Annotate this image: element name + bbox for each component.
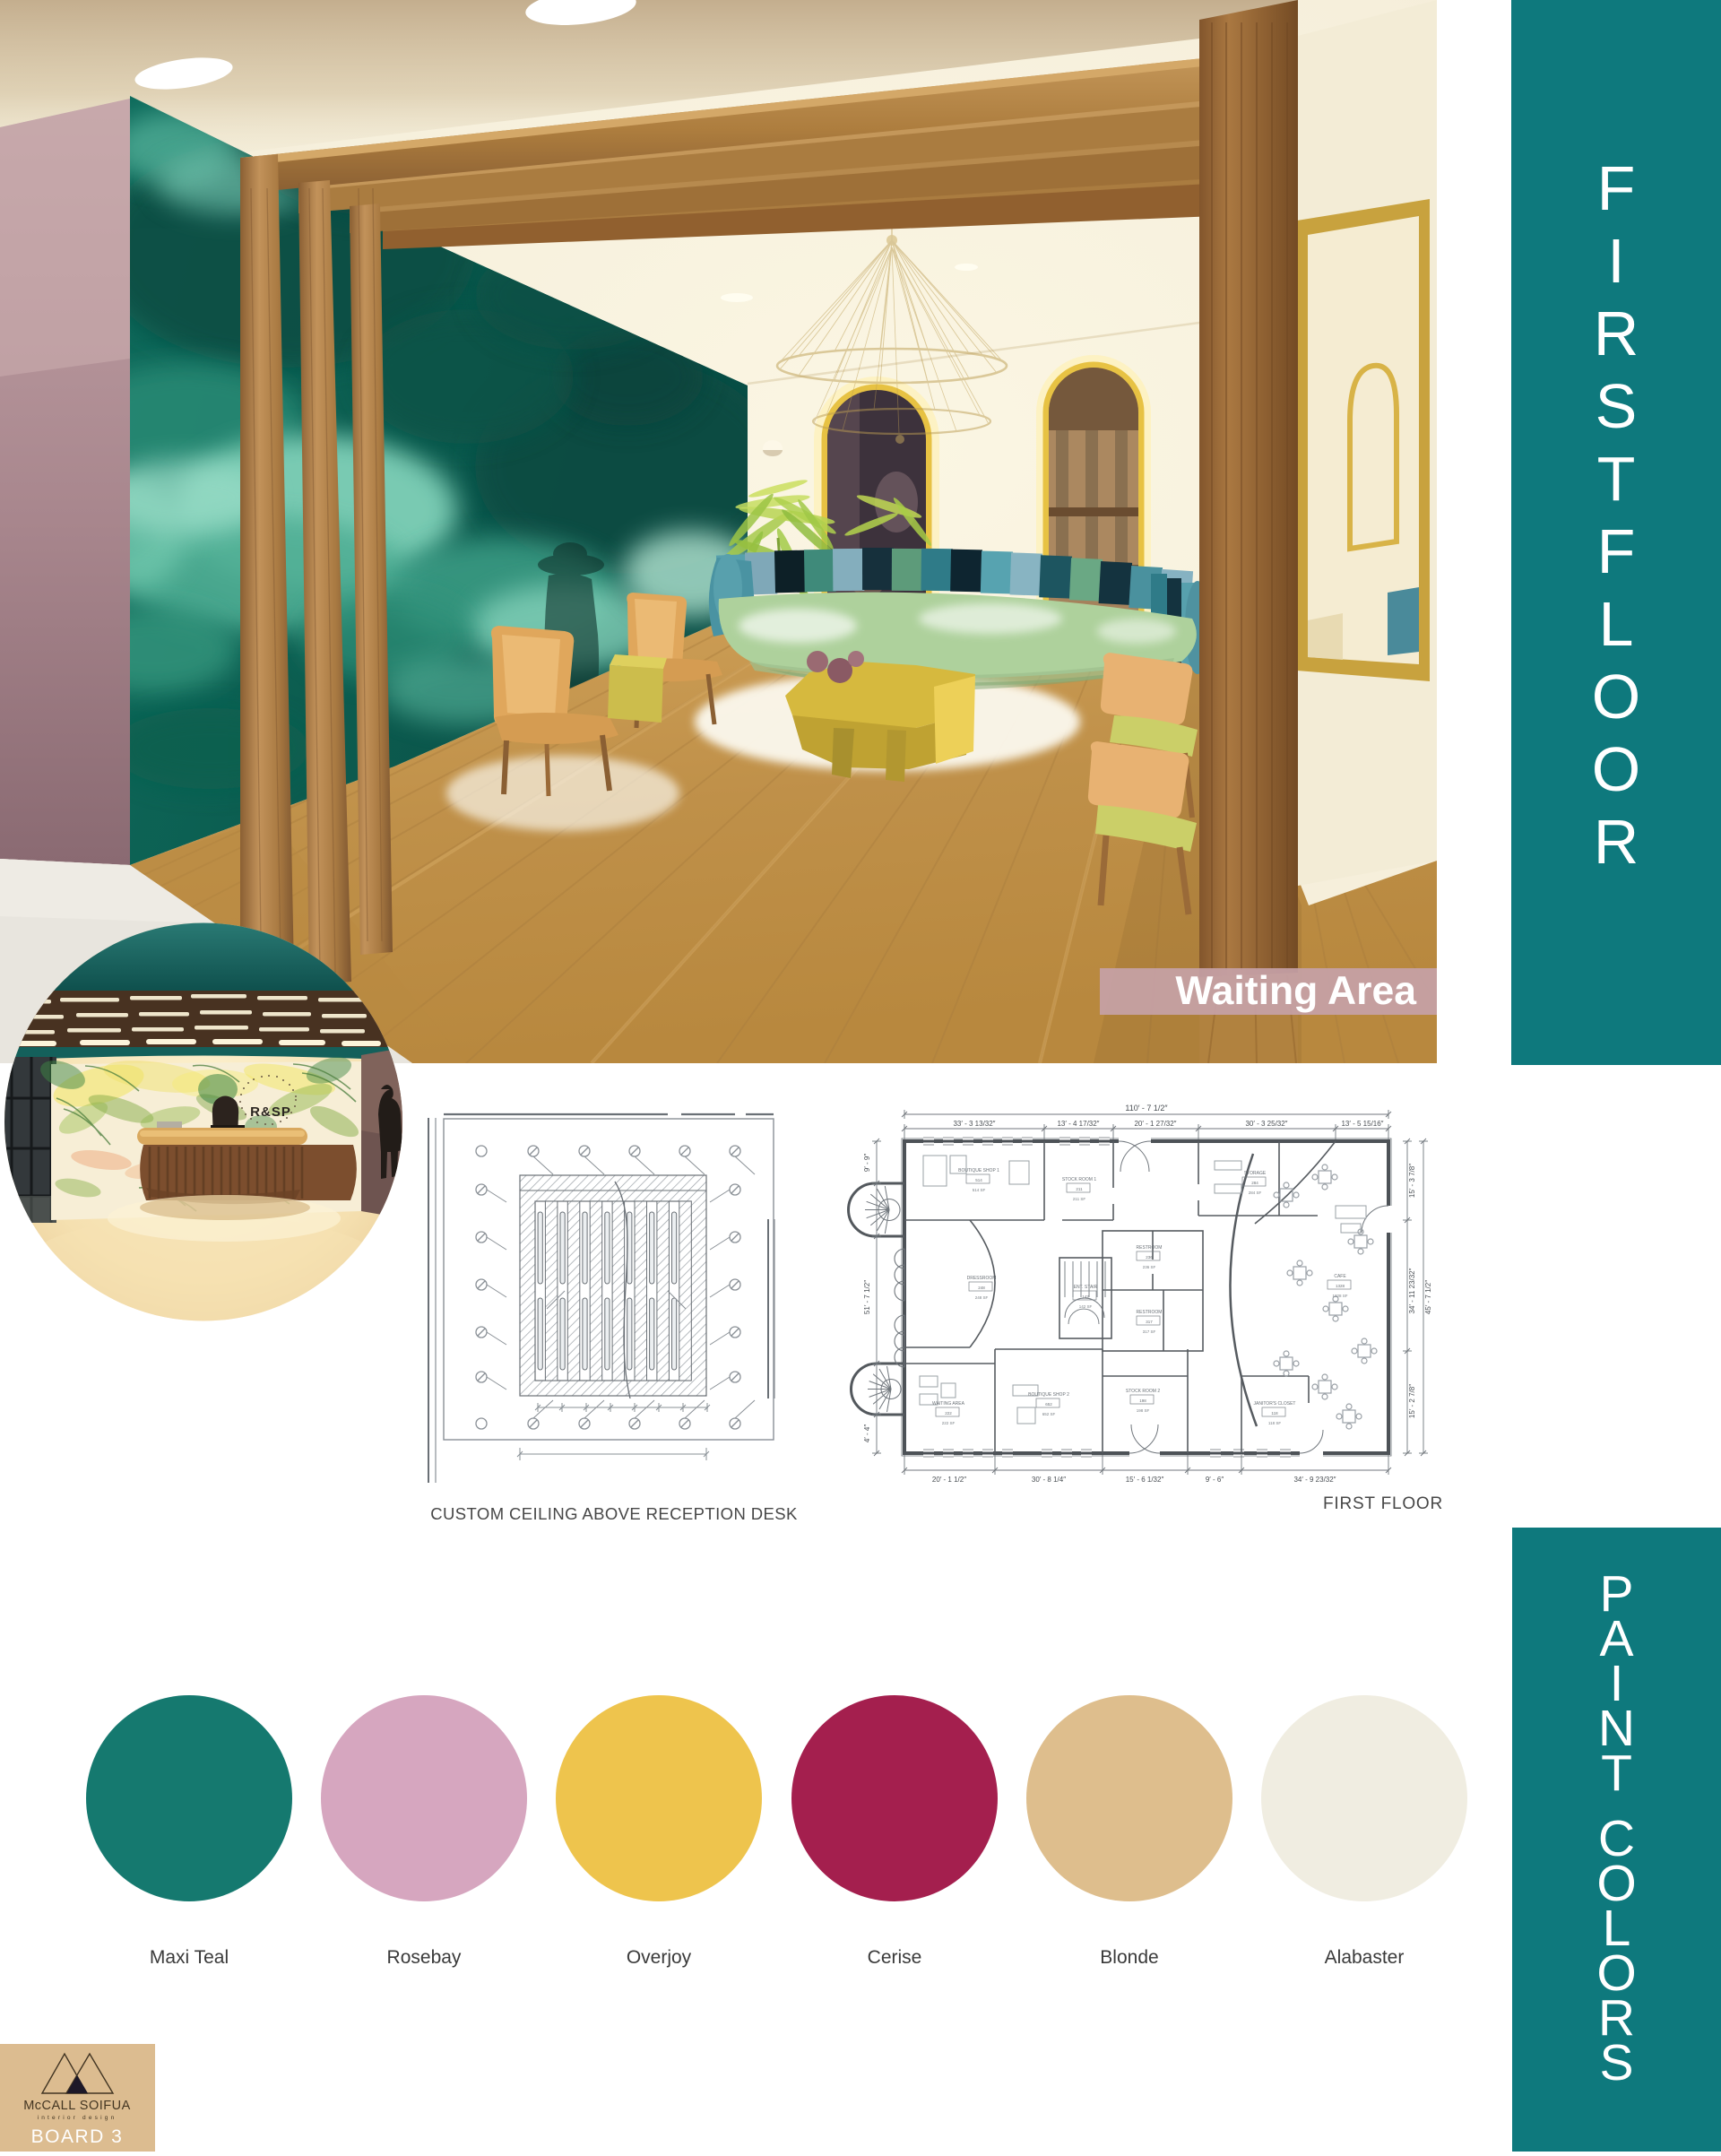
svg-text:interior design: interior design	[38, 2115, 117, 2121]
svg-text:211: 211	[1076, 1187, 1083, 1191]
svg-text:STORAGE: STORAGE	[1244, 1171, 1267, 1176]
svg-text:15′ - 3 7/8″: 15′ - 3 7/8″	[1408, 1164, 1416, 1198]
svg-text:30′ - 3 25/32″: 30′ - 3 25/32″	[1245, 1120, 1287, 1128]
svg-text:514 SF: 514 SF	[973, 1188, 986, 1192]
svg-text:211 SF: 211 SF	[1073, 1197, 1085, 1201]
svg-text:284 SF: 284 SF	[1249, 1191, 1262, 1195]
svg-text:142: 142	[1082, 1294, 1089, 1299]
svg-text:30′ - 8 1/4″: 30′ - 8 1/4″	[1032, 1476, 1066, 1484]
svg-text:284: 284	[1251, 1181, 1258, 1185]
svg-text:STOCK ROOM 1: STOCK ROOM 1	[1062, 1177, 1096, 1182]
svg-text:15′ - 2 7/8″: 15′ - 2 7/8″	[1408, 1384, 1416, 1418]
svg-text:Waiting Area: Waiting Area	[1175, 969, 1417, 1013]
svg-text:118: 118	[1271, 1411, 1278, 1416]
svg-text:118 SF: 118 SF	[1268, 1421, 1281, 1425]
svg-text:34′ - 11 23/32″: 34′ - 11 23/32″	[1408, 1268, 1416, 1313]
svg-text:BOUTIQUE SHOP 2: BOUTIQUE SHOP 2	[1028, 1392, 1069, 1398]
svg-text:WAITING AREA: WAITING AREA	[932, 1401, 965, 1407]
svg-text:9′ - 9″: 9′ - 9″	[863, 1154, 871, 1173]
svg-text:1328: 1328	[1336, 1284, 1345, 1288]
svg-text:13′ - 5 15/16″: 13′ - 5 15/16″	[1341, 1120, 1383, 1128]
svg-text:222 SF: 222 SF	[942, 1421, 956, 1425]
svg-text:ENT. STAIR: ENT. STAIR	[1074, 1285, 1098, 1290]
svg-text:248: 248	[978, 1286, 985, 1290]
svg-text:317 SF: 317 SF	[1143, 1329, 1156, 1334]
svg-text:20′ - 1 1/2″: 20′ - 1 1/2″	[932, 1476, 966, 1484]
svg-text:222: 222	[945, 1411, 952, 1416]
svg-text:STOCK ROOM 2: STOCK ROOM 2	[1126, 1389, 1160, 1394]
svg-text:BOARD 3: BOARD 3	[31, 2126, 124, 2147]
svg-text:33′ - 3 13/32″: 33′ - 3 13/32″	[953, 1120, 995, 1128]
svg-text:BOUTIQUE SHOP 1: BOUTIQUE SHOP 1	[958, 1168, 999, 1173]
svg-text:198 SF: 198 SF	[1137, 1408, 1150, 1413]
svg-text:514: 514	[975, 1178, 982, 1182]
svg-text:20′ - 1 27/32″: 20′ - 1 27/32″	[1134, 1120, 1176, 1128]
svg-text:9′ - 6″: 9′ - 6″	[1206, 1476, 1224, 1484]
svg-text:4′ - 4″: 4′ - 4″	[863, 1424, 871, 1443]
svg-text:317: 317	[1146, 1320, 1153, 1324]
svg-text:142 SF: 142 SF	[1079, 1304, 1093, 1309]
svg-text:652 SF: 652 SF	[1042, 1412, 1056, 1416]
svg-text:51′ - 7 1/2″: 51′ - 7 1/2″	[863, 1280, 871, 1314]
svg-text:34′ - 9 23/32″: 34′ - 9 23/32″	[1293, 1476, 1336, 1484]
svg-text:DRESSROOM: DRESSROOM	[967, 1276, 997, 1281]
svg-text:248 SF: 248 SF	[975, 1295, 989, 1300]
svg-text:236: 236	[1146, 1255, 1153, 1260]
svg-text:RESTROOM: RESTROOM	[1137, 1245, 1163, 1251]
svg-text:15′ - 6 1/32″: 15′ - 6 1/32″	[1126, 1476, 1164, 1484]
svg-text:1328 SF: 1328 SF	[1332, 1294, 1347, 1298]
svg-text:JANITOR'S CLOSET: JANITOR'S CLOSET	[1254, 1401, 1296, 1407]
svg-text:R&SP: R&SP	[250, 1104, 291, 1120]
svg-text:110′ - 7 1/2″: 110′ - 7 1/2″	[1125, 1104, 1168, 1113]
svg-text:45′ - 7 1/2″: 45′ - 7 1/2″	[1424, 1280, 1432, 1314]
svg-text:198: 198	[1139, 1398, 1146, 1403]
svg-text:236 SF: 236 SF	[1143, 1265, 1156, 1269]
svg-text:13′ - 4 17/32″: 13′ - 4 17/32″	[1057, 1120, 1099, 1128]
svg-text:CAFE: CAFE	[1334, 1274, 1346, 1279]
svg-text:652: 652	[1045, 1402, 1052, 1407]
svg-text:McCALL SOIFUA: McCALL SOIFUA	[23, 2099, 131, 2113]
svg-text:RESTROOM: RESTROOM	[1137, 1310, 1163, 1315]
